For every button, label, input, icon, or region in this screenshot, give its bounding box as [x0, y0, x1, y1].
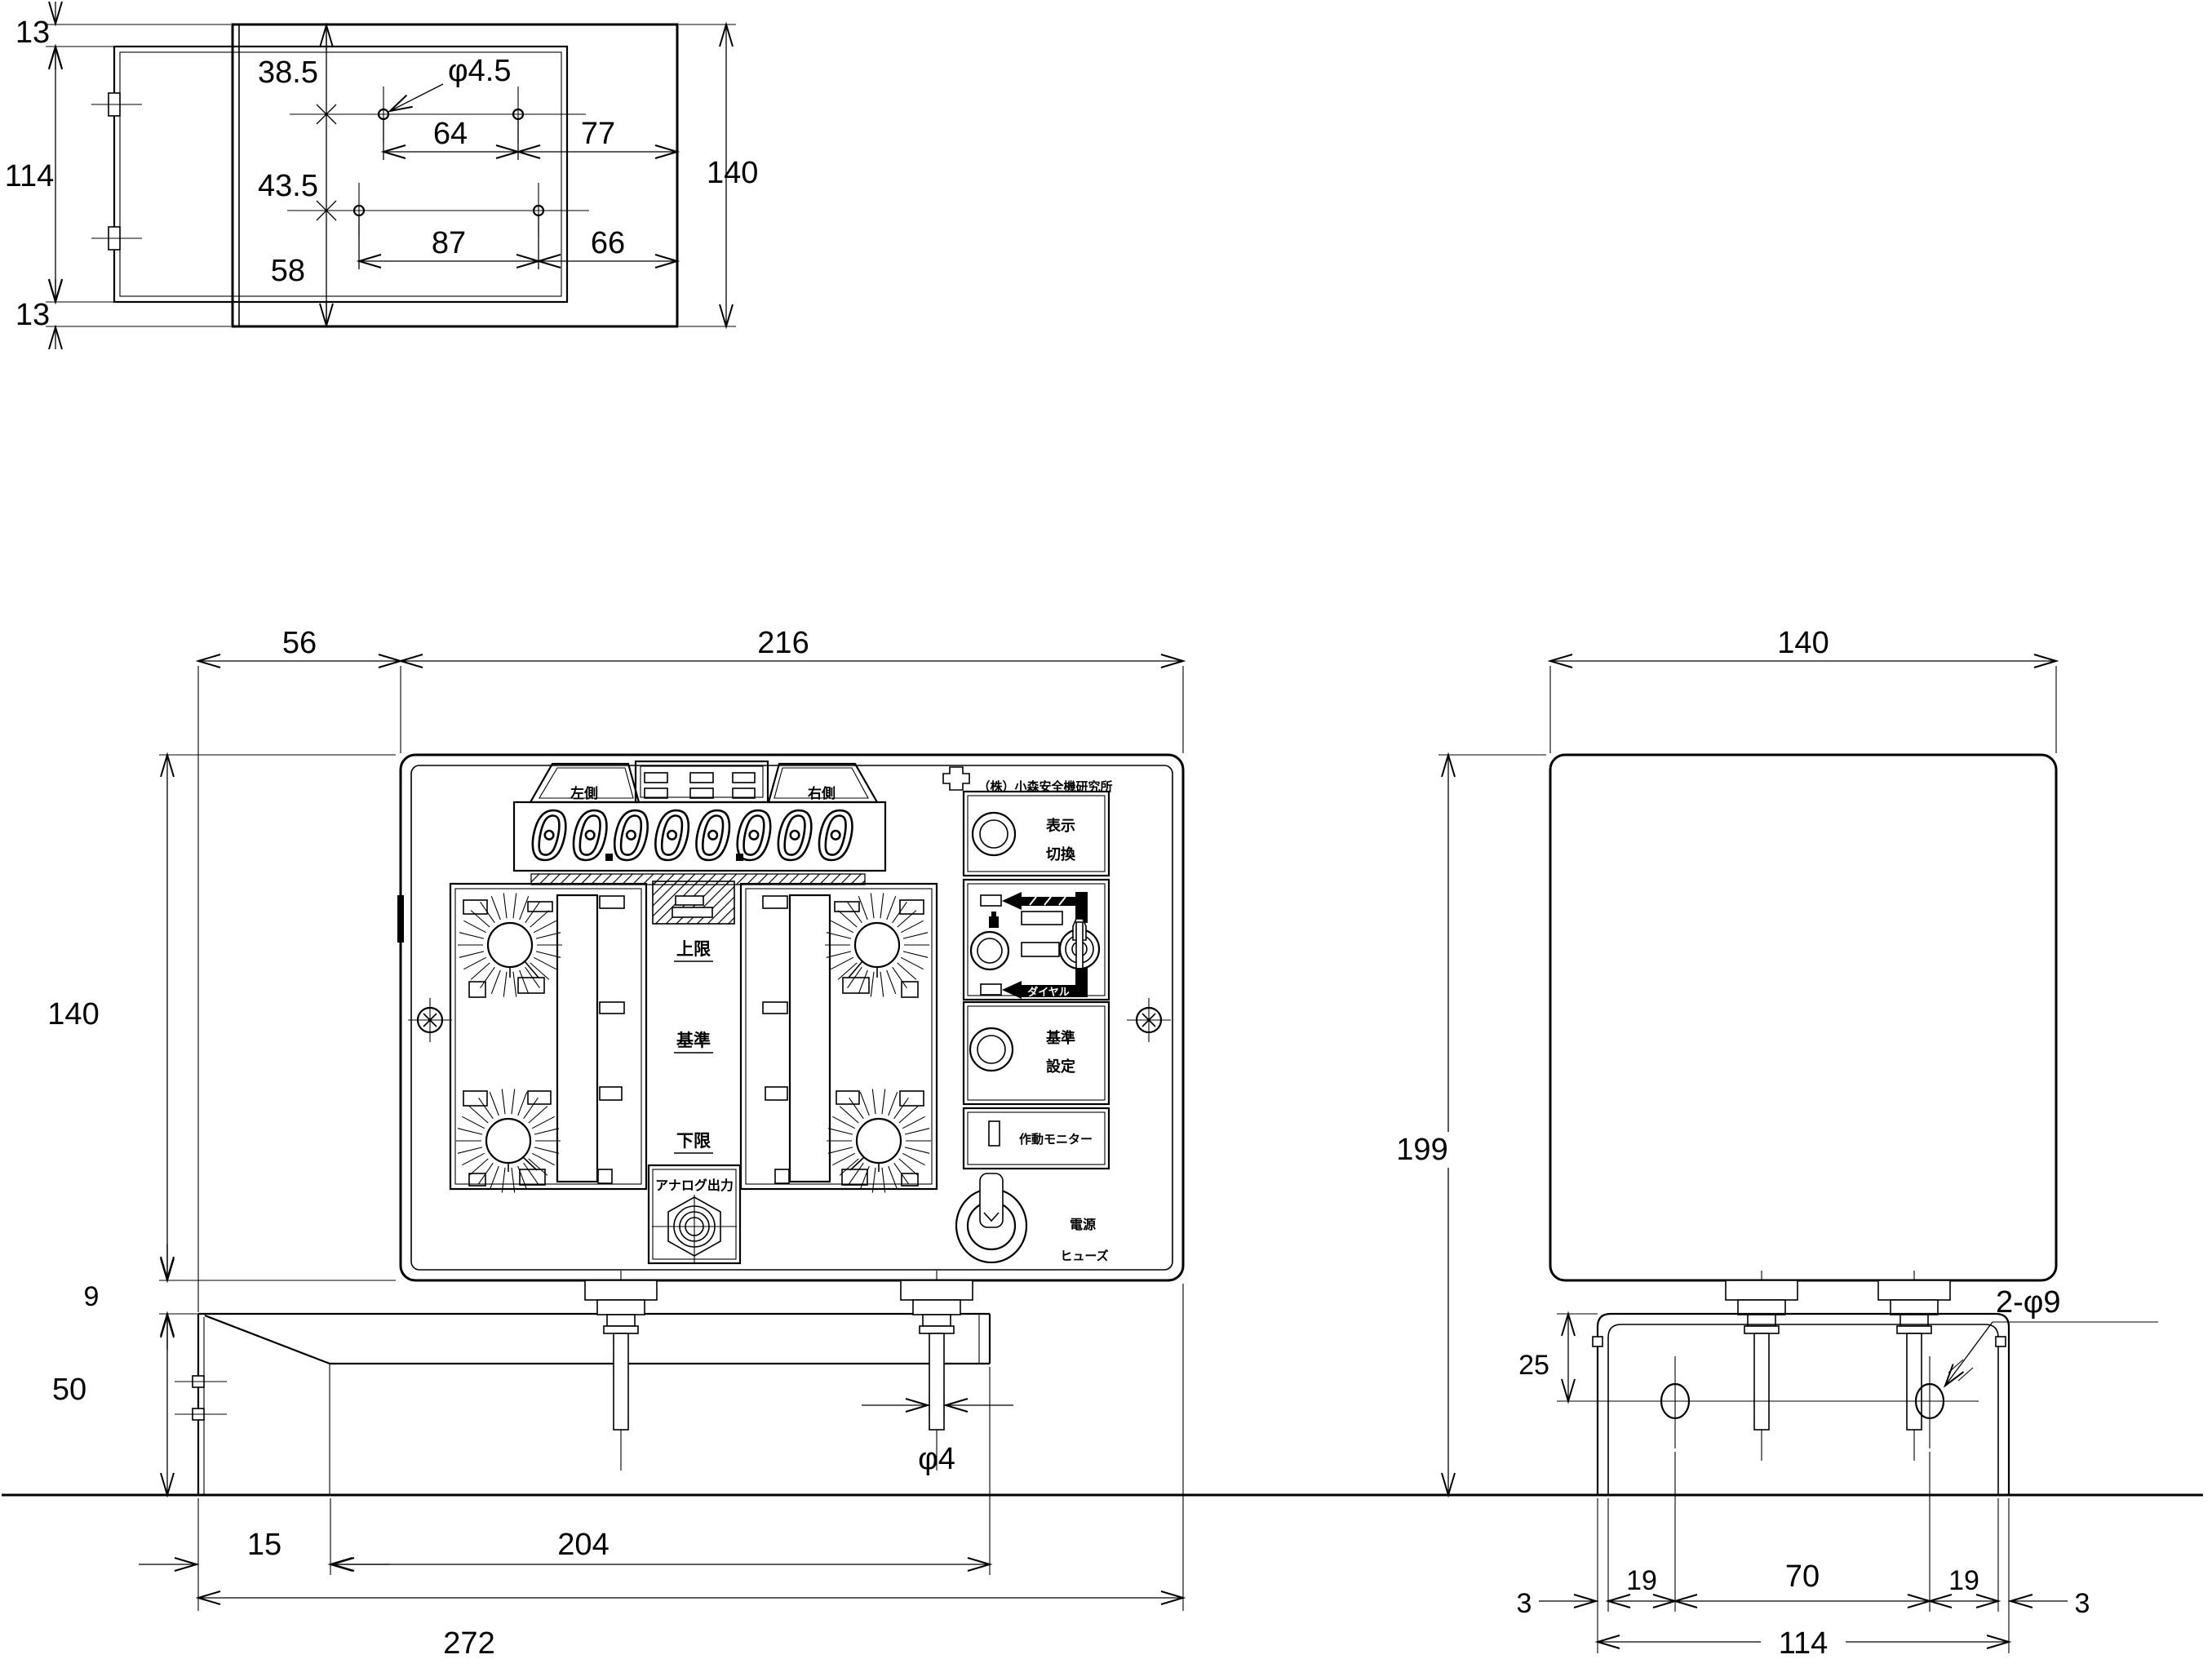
dim-64: 64: [433, 117, 468, 151]
toggle-lever: [980, 1173, 1003, 1227]
cross-mark-icon: [943, 767, 969, 790]
reference-set-label1: 基準: [1045, 1029, 1075, 1046]
dim-43-5: 43.5: [258, 169, 318, 203]
indicator-block: [636, 761, 768, 802]
dim-56: 56: [282, 626, 317, 660]
monitor-led: [989, 1121, 1000, 1146]
dim-199: 199: [1396, 1133, 1447, 1167]
mounting-stud: [585, 1280, 657, 1430]
right-adjuster-panel: [741, 884, 937, 1193]
dim-140-depth: 140: [707, 156, 758, 190]
top-view: φ4.5 64 77 87 66 38.5 43.5 58 13: [5, 2, 759, 349]
lock-icon: [989, 912, 999, 928]
dim-19-left: 19: [1626, 1565, 1657, 1596]
panel-screw-left: [408, 998, 452, 1042]
mounting-stud: [901, 1280, 973, 1430]
decimal-point: [736, 854, 743, 861]
mounting-stud: [1726, 1280, 1798, 1430]
decimal-point: [605, 854, 613, 861]
dim-70: 70: [1785, 1559, 1820, 1594]
power-switch: [956, 1173, 1026, 1262]
display-switch-label2: 切換: [1046, 845, 1076, 863]
reference-set-section: 基準 設定: [964, 1002, 1109, 1104]
dim-140-side: 140: [1777, 626, 1829, 660]
dim-50: 50: [52, 1373, 86, 1407]
operation-monitor-label: 作動モニター: [1019, 1132, 1093, 1147]
fuse-label: ヒューズ: [1060, 1249, 1108, 1263]
reference-label: 基準: [676, 1031, 711, 1050]
upper-limit-label: 上限: [676, 940, 711, 959]
key-switch-section: ダイヤル: [964, 880, 1109, 1000]
display-switch-section: 表示 切換: [964, 792, 1109, 876]
lock-direction-arrow: [1002, 892, 1088, 923]
side-view: 140 199 2-φ9 25: [1389, 626, 2158, 1661]
dim-3-left: 3: [1517, 1588, 1532, 1619]
dim-38-5: 38.5: [258, 55, 318, 90]
dim-114: 114: [1779, 1626, 1829, 1661]
dim-9: 9: [84, 1281, 100, 1312]
mounting-stud: [1878, 1280, 1950, 1430]
analog-output-connector: アナログ出力: [649, 1165, 740, 1264]
dim-77: 77: [581, 117, 615, 151]
bracket-hole-callout: 2-φ9: [1996, 1285, 2061, 1320]
reference-set-button: [970, 1028, 1013, 1071]
dim-13-top: 13: [16, 16, 50, 50]
stud-diameter-callout: φ4: [918, 1442, 955, 1476]
dim-13-bottom: 13: [16, 298, 50, 332]
left-meter-window: [557, 895, 597, 1182]
dim-87: 87: [432, 226, 466, 260]
analog-output-label: アナログ出力: [655, 1178, 734, 1193]
lower-limit-label: 下限: [676, 1132, 711, 1151]
dim-19-right: 19: [1948, 1565, 1979, 1596]
key-section-button: [971, 932, 1008, 969]
dim-204: 204: [557, 1528, 609, 1562]
dim-216: 216: [757, 626, 809, 660]
operation-monitor-section: 作動モニター: [964, 1108, 1109, 1169]
enclosure-side: [1550, 755, 2056, 1280]
dim-3-right: 3: [2075, 1588, 2090, 1619]
bracket-side: [1598, 1314, 2009, 1495]
dim-15: 15: [247, 1528, 281, 1562]
left-adjuster-panel: [450, 884, 646, 1193]
dial-arrow-label: ダイヤル: [1027, 986, 1070, 998]
cad-drawing-canvas: φ4.5 64 77 87 66 38.5 43.5 58 13: [0, 0, 2212, 1668]
hole-diameter-callout: φ4.5: [448, 54, 511, 88]
front-panel: 左側 右側 00000000: [408, 761, 1171, 1264]
dim-272: 272: [443, 1626, 494, 1661]
display-digits: 00000000: [530, 799, 857, 875]
right-meter-window: [790, 895, 830, 1182]
display-switch-button: [973, 813, 1015, 855]
dim-114: 114: [5, 159, 55, 193]
panel-screw-right: [1127, 998, 1171, 1042]
display-switch-label1: 表示: [1046, 817, 1075, 834]
reference-set-label2: 設定: [1046, 1058, 1075, 1075]
power-label: 電源: [1070, 1217, 1096, 1232]
dim-66: 66: [591, 226, 625, 260]
dim-58: 58: [271, 254, 305, 288]
dim-140-height: 140: [47, 997, 99, 1031]
dim-25: 25: [1518, 1350, 1549, 1381]
